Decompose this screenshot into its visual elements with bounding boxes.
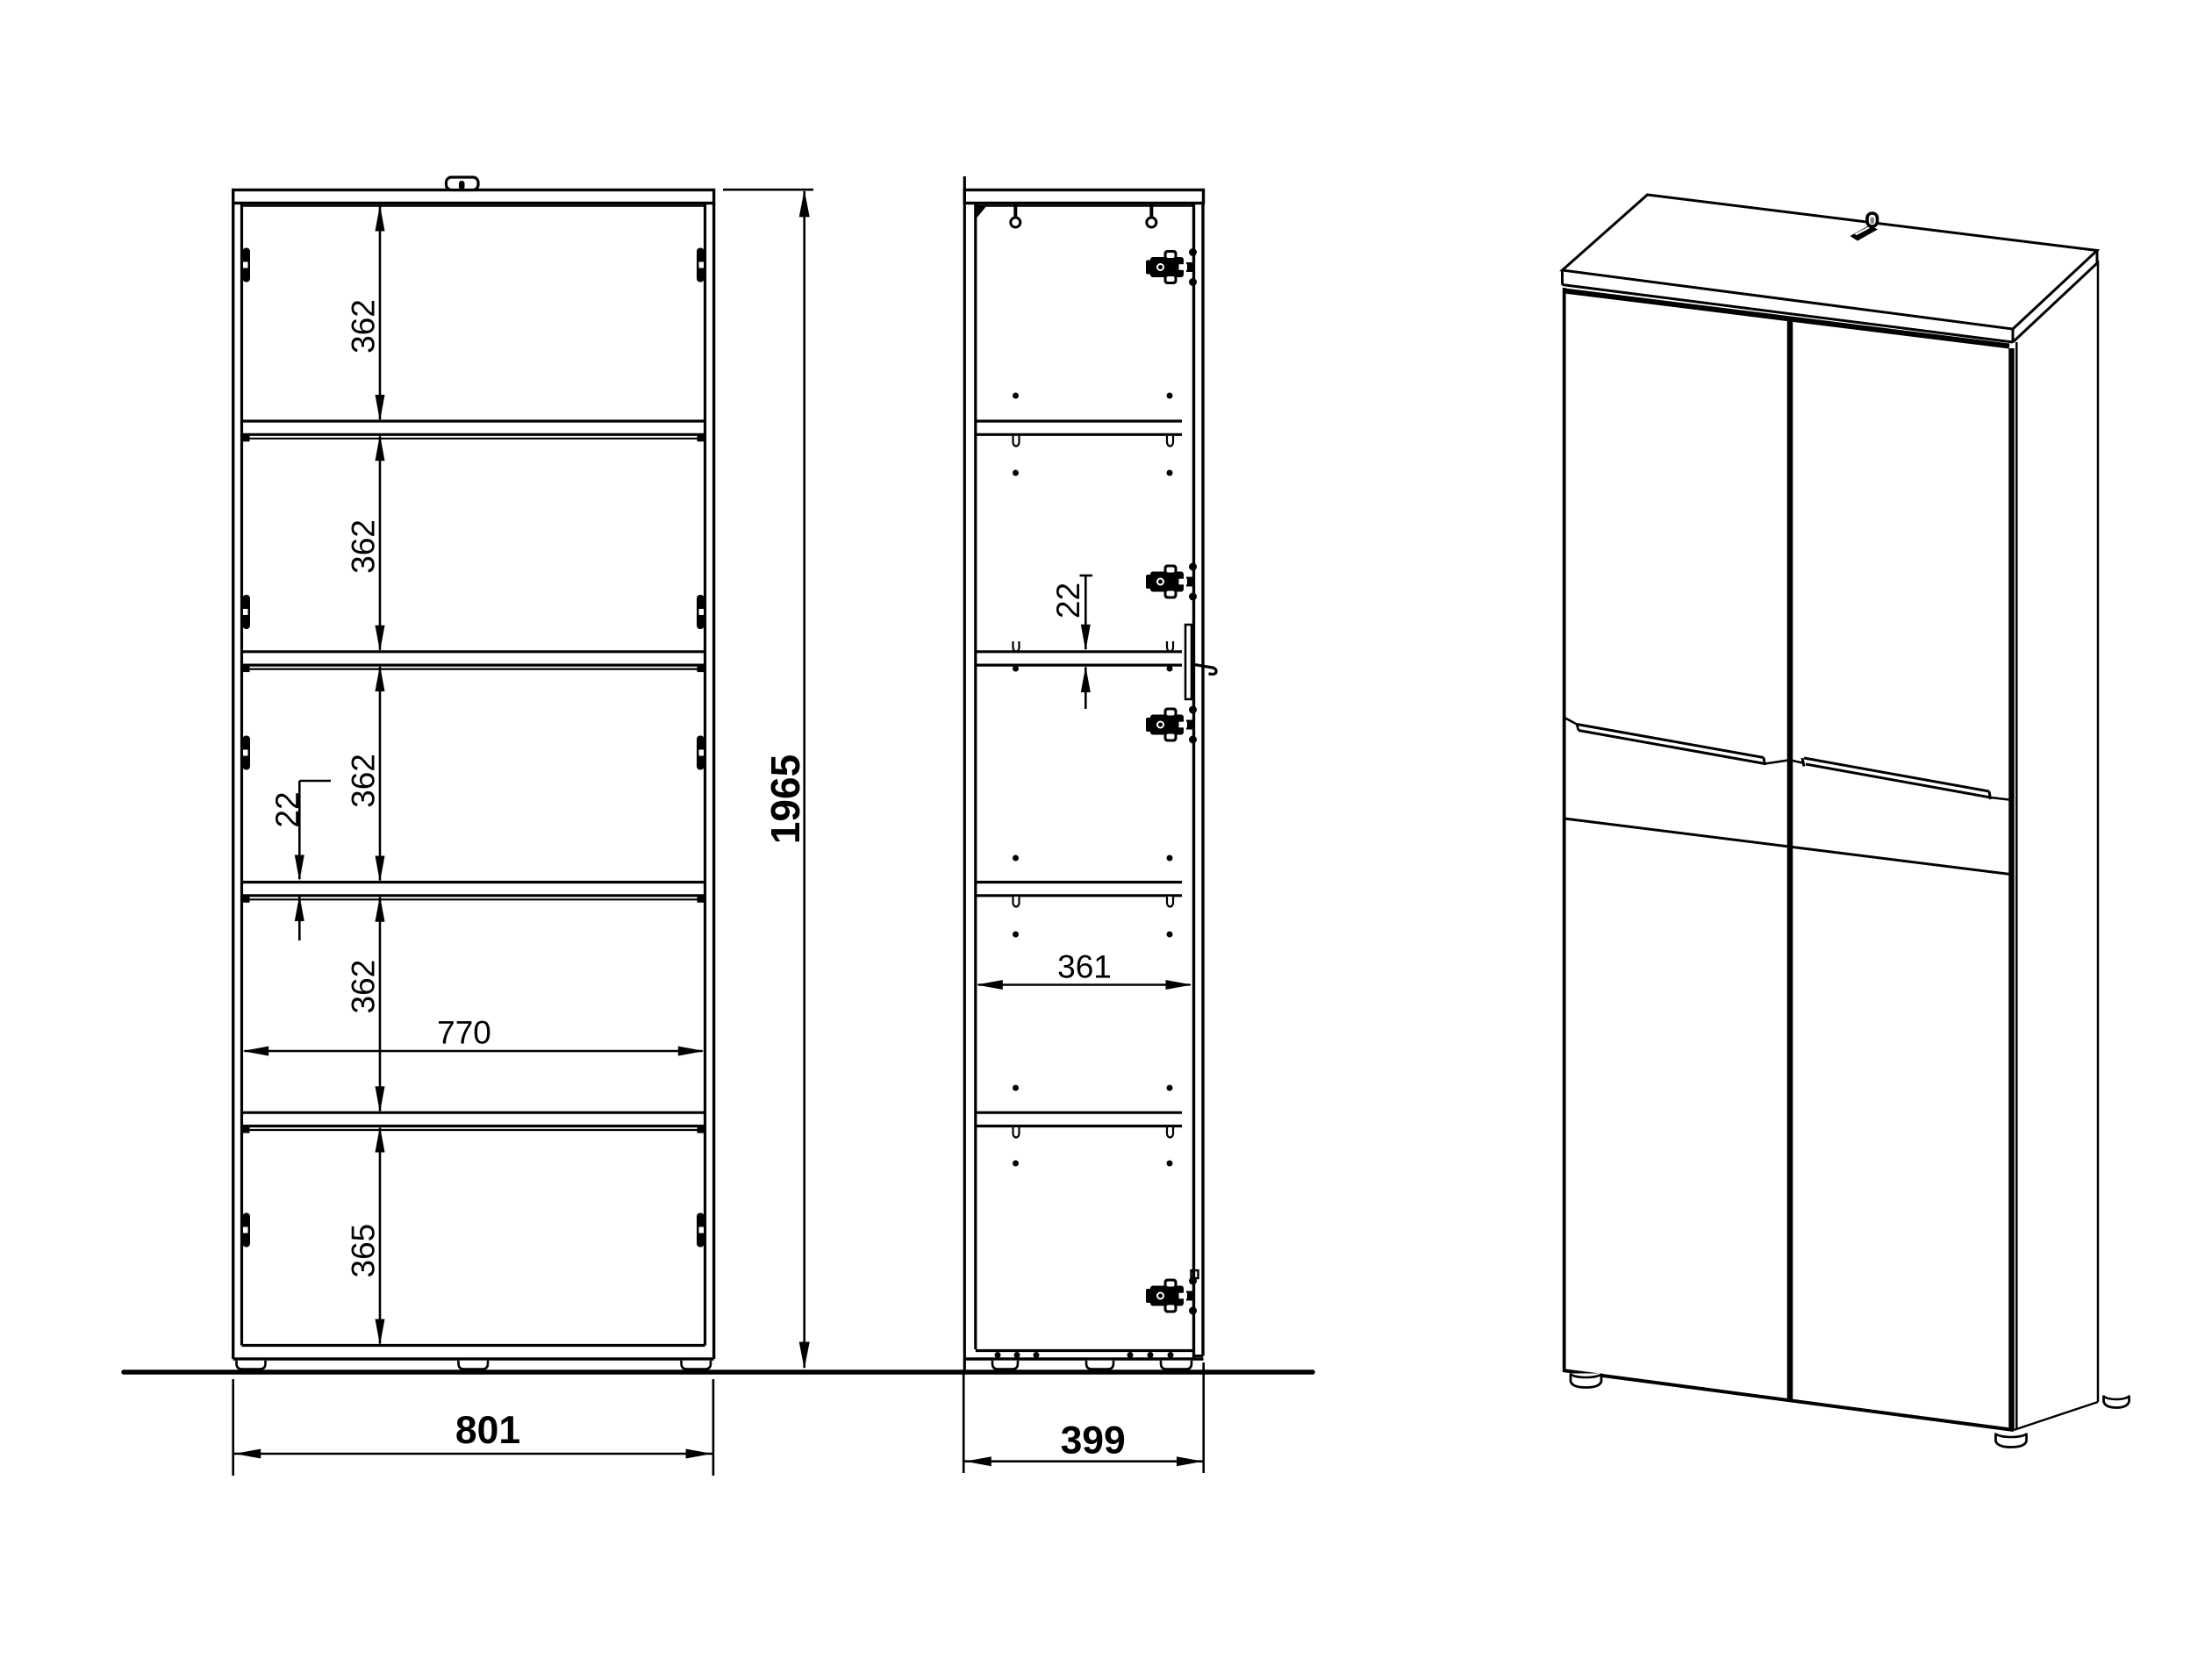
svg-text:361: 361 <box>1057 949 1112 985</box>
svg-text:362: 362 <box>346 299 382 354</box>
svg-text:22: 22 <box>269 791 305 827</box>
svg-text:365: 365 <box>346 1224 382 1278</box>
svg-text:362: 362 <box>346 754 382 808</box>
svg-text:770: 770 <box>437 1015 491 1051</box>
svg-text:1965: 1965 <box>762 754 808 844</box>
svg-text:22: 22 <box>1050 583 1086 619</box>
svg-text:362: 362 <box>346 960 382 1014</box>
svg-text:801: 801 <box>455 1409 520 1452</box>
svg-text:362: 362 <box>346 519 382 574</box>
svg-text:399: 399 <box>1061 1419 1126 1462</box>
